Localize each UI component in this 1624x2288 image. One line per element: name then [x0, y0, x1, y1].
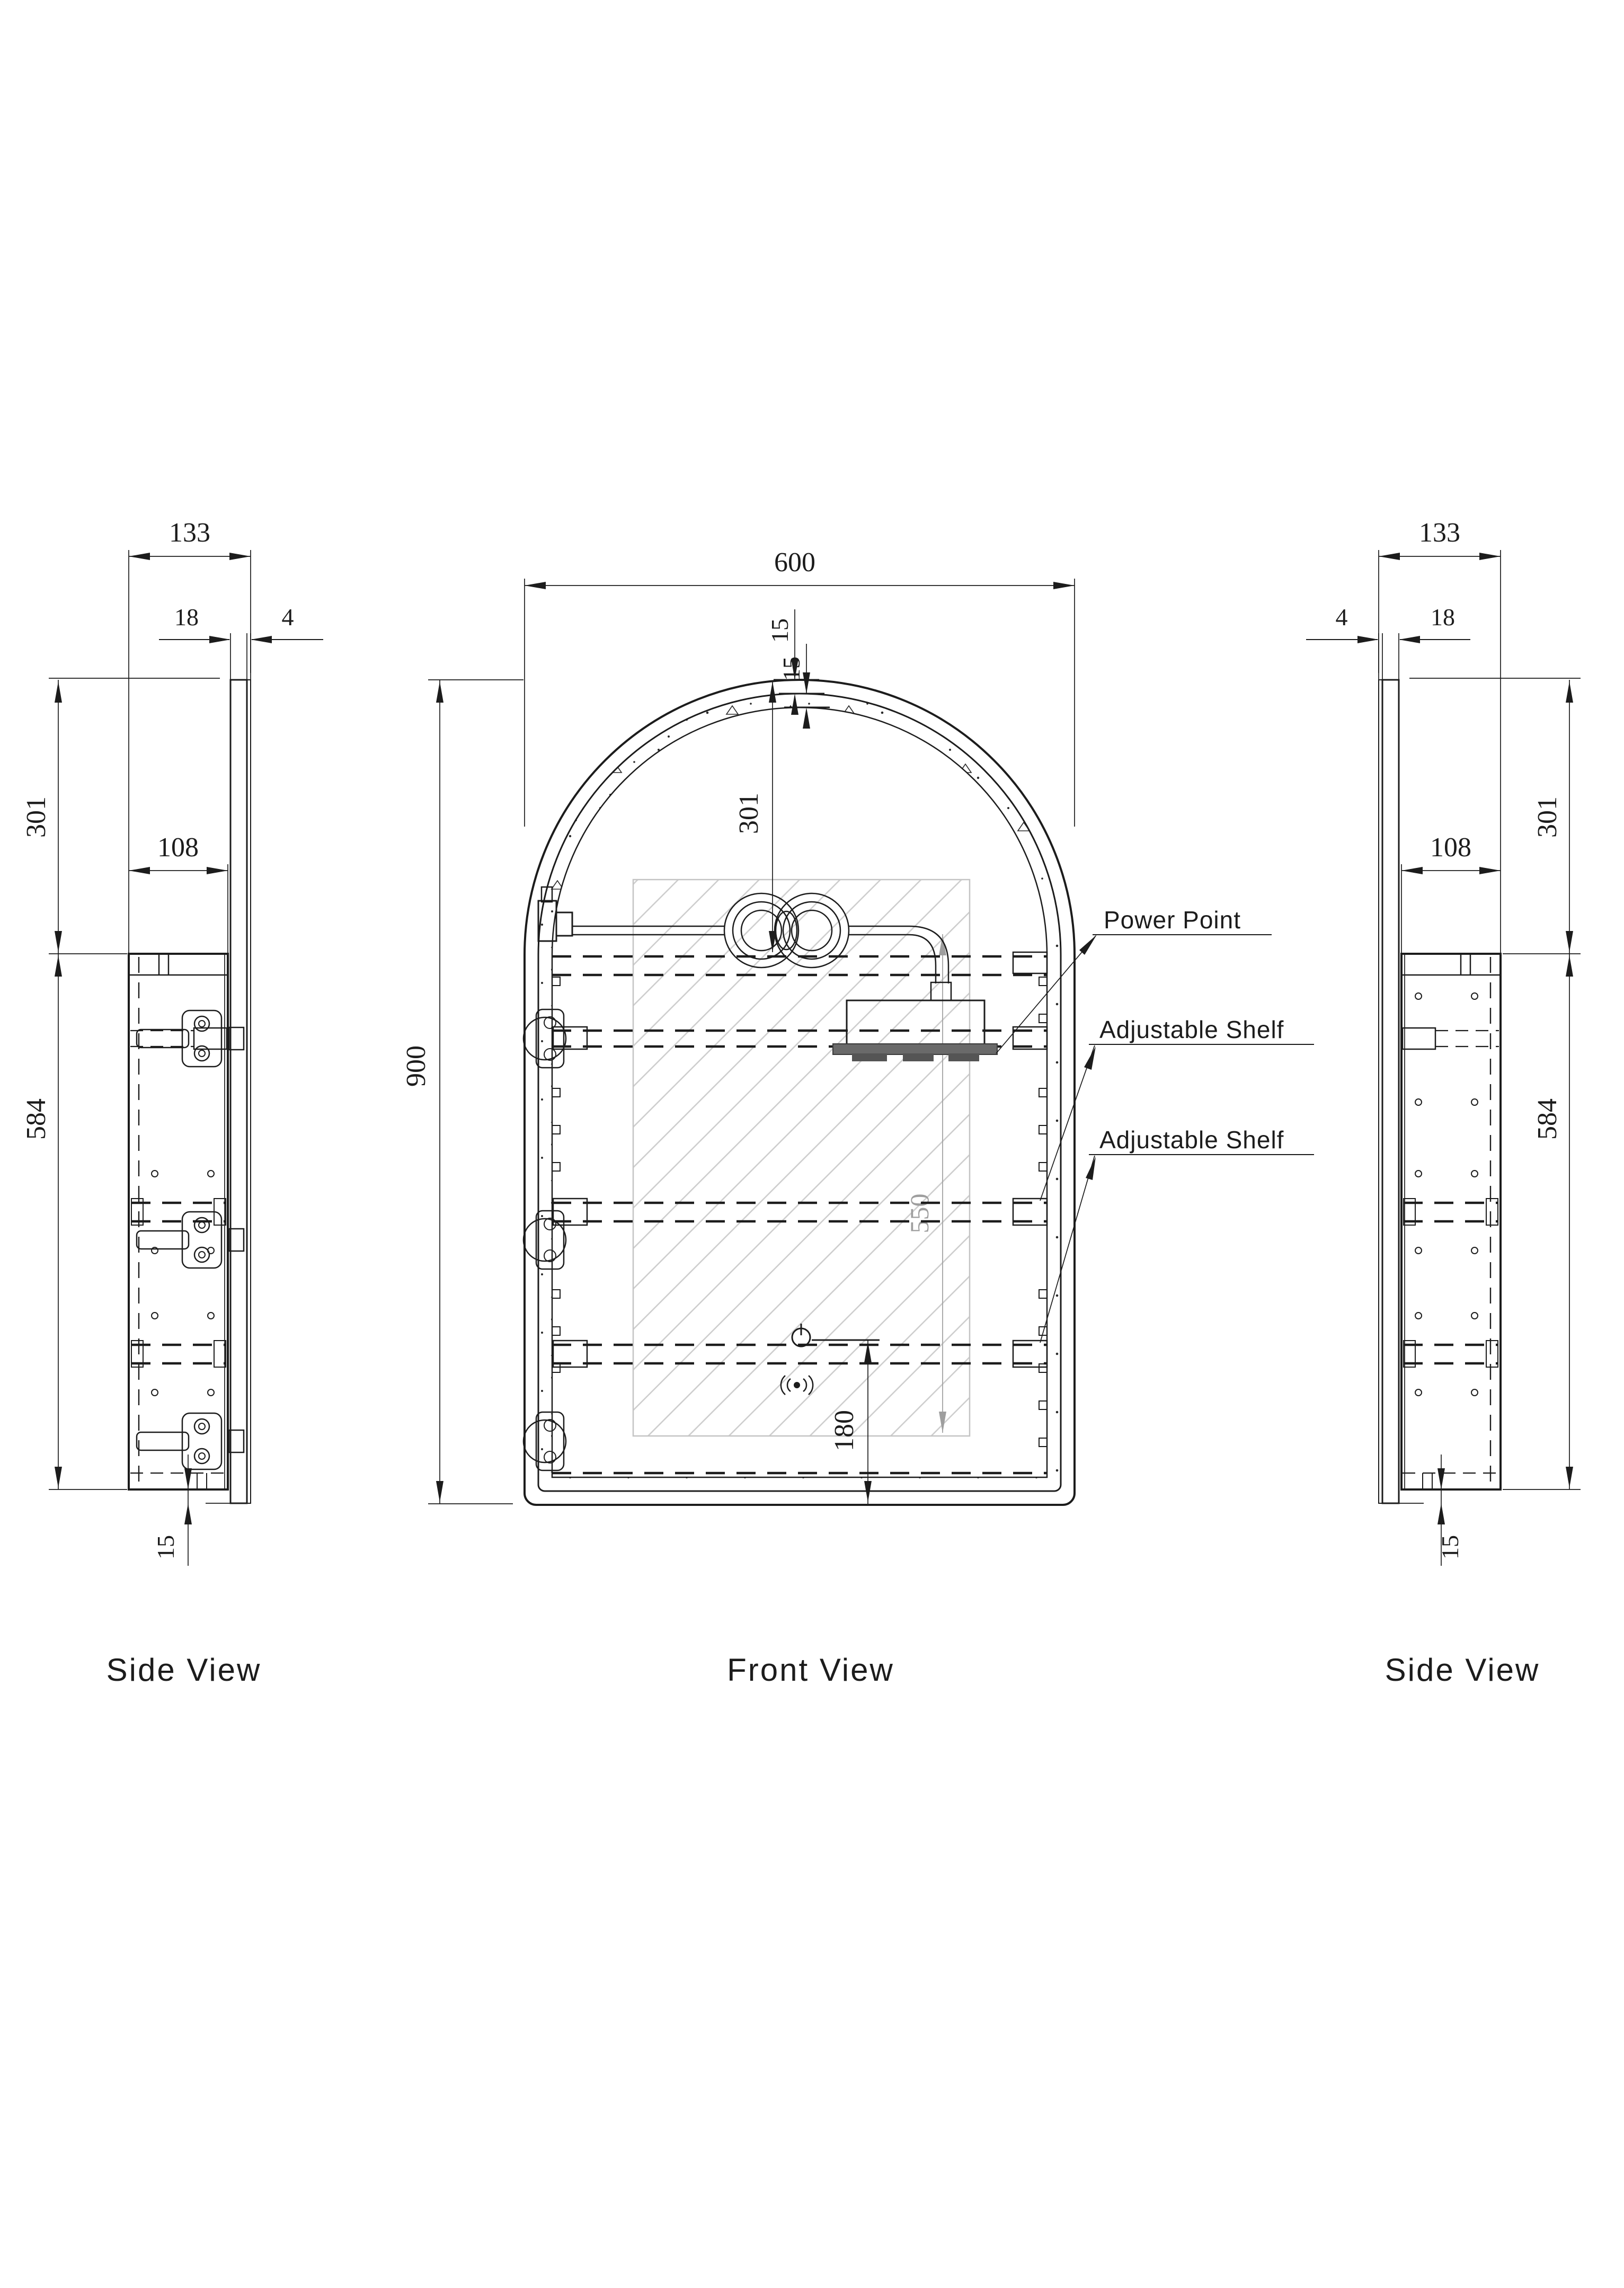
- dim-18-right: 18: [1431, 604, 1455, 631]
- dim-584-right: 584: [1532, 1098, 1563, 1140]
- dim-15-right: 15: [1436, 1535, 1463, 1559]
- cabinet-technical-drawing: 550: [0, 0, 1624, 2288]
- dim-900-front: 900: [401, 1045, 431, 1087]
- dim-301-right: 301: [1532, 796, 1563, 838]
- dim-584-left: 584: [21, 1098, 51, 1140]
- drawing-sheet: 550: [0, 0, 1624, 2288]
- dim-15-left: 15: [152, 1535, 179, 1559]
- dim-18-left: 18: [174, 604, 199, 631]
- dim-15-frame-outer: 15: [766, 618, 793, 643]
- dim-180-front: 180: [829, 1410, 859, 1451]
- mirror-glass-hatch: [633, 880, 970, 1436]
- dim-15-frame-inner: 15: [778, 657, 805, 681]
- dim-301-front: 301: [734, 793, 764, 834]
- caption-side-view-left: Side View: [107, 1652, 262, 1688]
- caption-side-view-right: Side View: [1385, 1652, 1540, 1688]
- dim-108-right: 108: [1430, 832, 1471, 863]
- dim-133-right: 133: [1419, 518, 1460, 548]
- dim-301-left: 301: [21, 796, 51, 838]
- callout-power-point-label: Power Point: [1104, 906, 1241, 934]
- dim-133-left: 133: [169, 518, 210, 548]
- dim-4-right: 4: [1336, 604, 1348, 631]
- dim-108-left: 108: [157, 832, 199, 863]
- dim-600-front: 600: [774, 547, 815, 578]
- callout-adjustable-shelf-lower-label: Adjustable Shelf: [1099, 1126, 1284, 1154]
- caption-front-view: Front View: [727, 1652, 894, 1688]
- callout-adjustable-shelf-upper-label: Adjustable Shelf: [1099, 1016, 1284, 1043]
- dim-4-left: 4: [282, 604, 294, 631]
- dim-550-front: 550: [904, 1194, 934, 1234]
